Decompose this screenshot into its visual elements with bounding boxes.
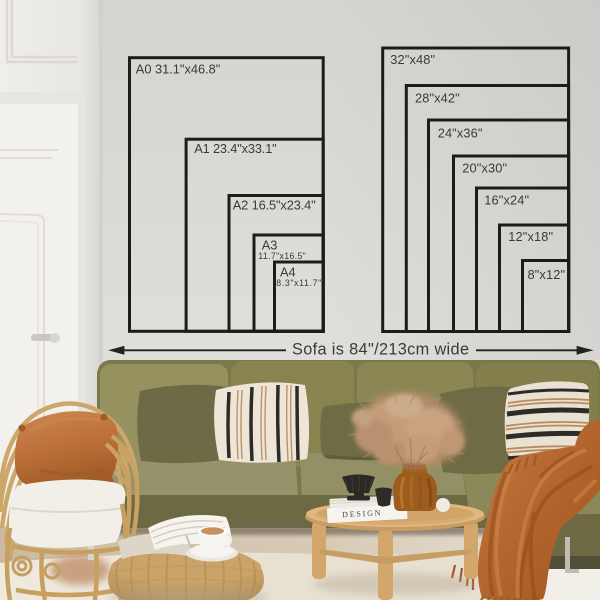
svg-text:32"x48": 32"x48" [390,52,435,67]
svg-text:16"x24": 16"x24" [484,192,529,207]
svg-text:Sofa is 84"/213cm wide: Sofa is 84"/213cm wide [292,341,469,359]
svg-text:20"x30": 20"x30" [462,161,507,176]
svg-text:A0 31.1"x46.8": A0 31.1"x46.8" [136,62,221,77]
svg-text:28"x42": 28"x42" [415,91,460,106]
svg-text:11.7"x16.5": 11.7"x16.5" [258,251,306,261]
svg-text:A1 23.4"x33.1": A1 23.4"x33.1" [194,141,277,156]
svg-text:A2 16.5"x23.4": A2 16.5"x23.4" [233,197,316,212]
svg-text:8"x12": 8"x12" [528,267,566,282]
svg-text:12"x18": 12"x18" [508,229,553,244]
svg-text:24"x36": 24"x36" [438,125,483,140]
svg-text:8.3"x11.7": 8.3"x11.7" [276,278,321,288]
